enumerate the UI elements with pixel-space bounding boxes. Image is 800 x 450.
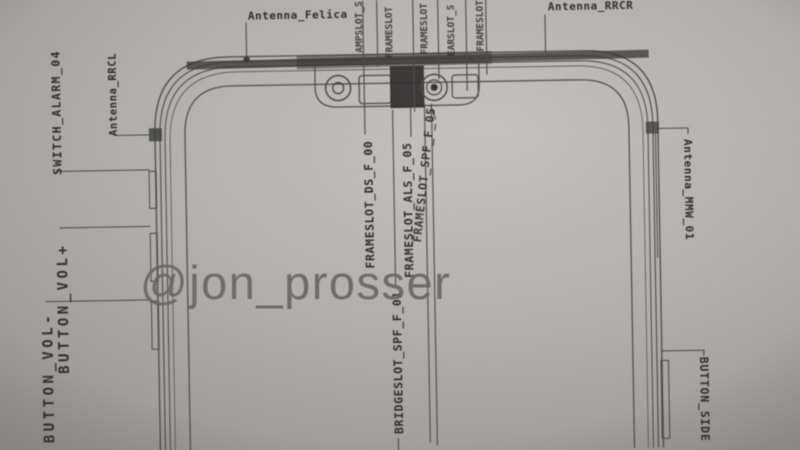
photo-vignette xyxy=(0,0,800,450)
leaked-schematic-photo: Antenna_Felica Antenna_RRCR SWITCH_ALARM… xyxy=(0,0,800,450)
schematic-canvas: Antenna_Felica Antenna_RRCR SWITCH_ALARM… xyxy=(0,0,800,450)
